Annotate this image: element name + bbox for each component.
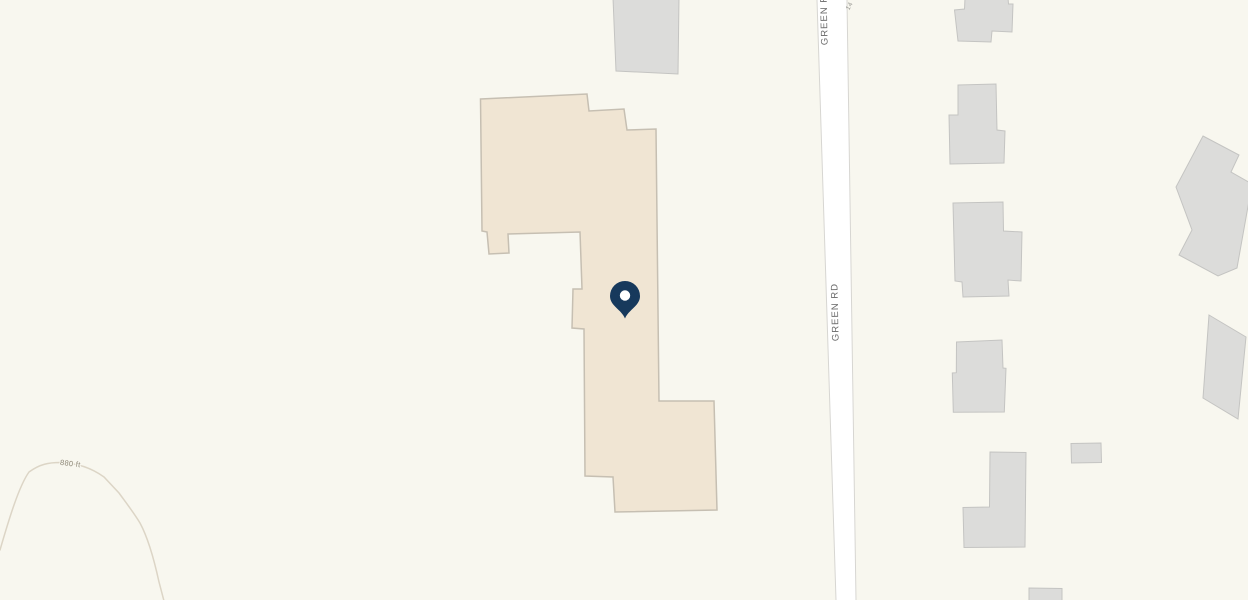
pin-hole — [620, 290, 630, 300]
map-canvas[interactable]: GREEN RD GREEN RD 14 880 ft — [0, 0, 1248, 600]
neighbor-building-footprint — [1071, 443, 1102, 463]
road-name-label: GREEN RD — [829, 283, 841, 341]
neighbor-building-footprint — [952, 340, 1006, 412]
neighbor-building-footprint — [613, 0, 679, 74]
road-name-label-top: GREEN RD — [818, 0, 830, 45]
neighbor-building-footprint — [1029, 588, 1062, 600]
map-render-layer: GREEN RD GREEN RD 14 880 ft — [0, 0, 1248, 600]
